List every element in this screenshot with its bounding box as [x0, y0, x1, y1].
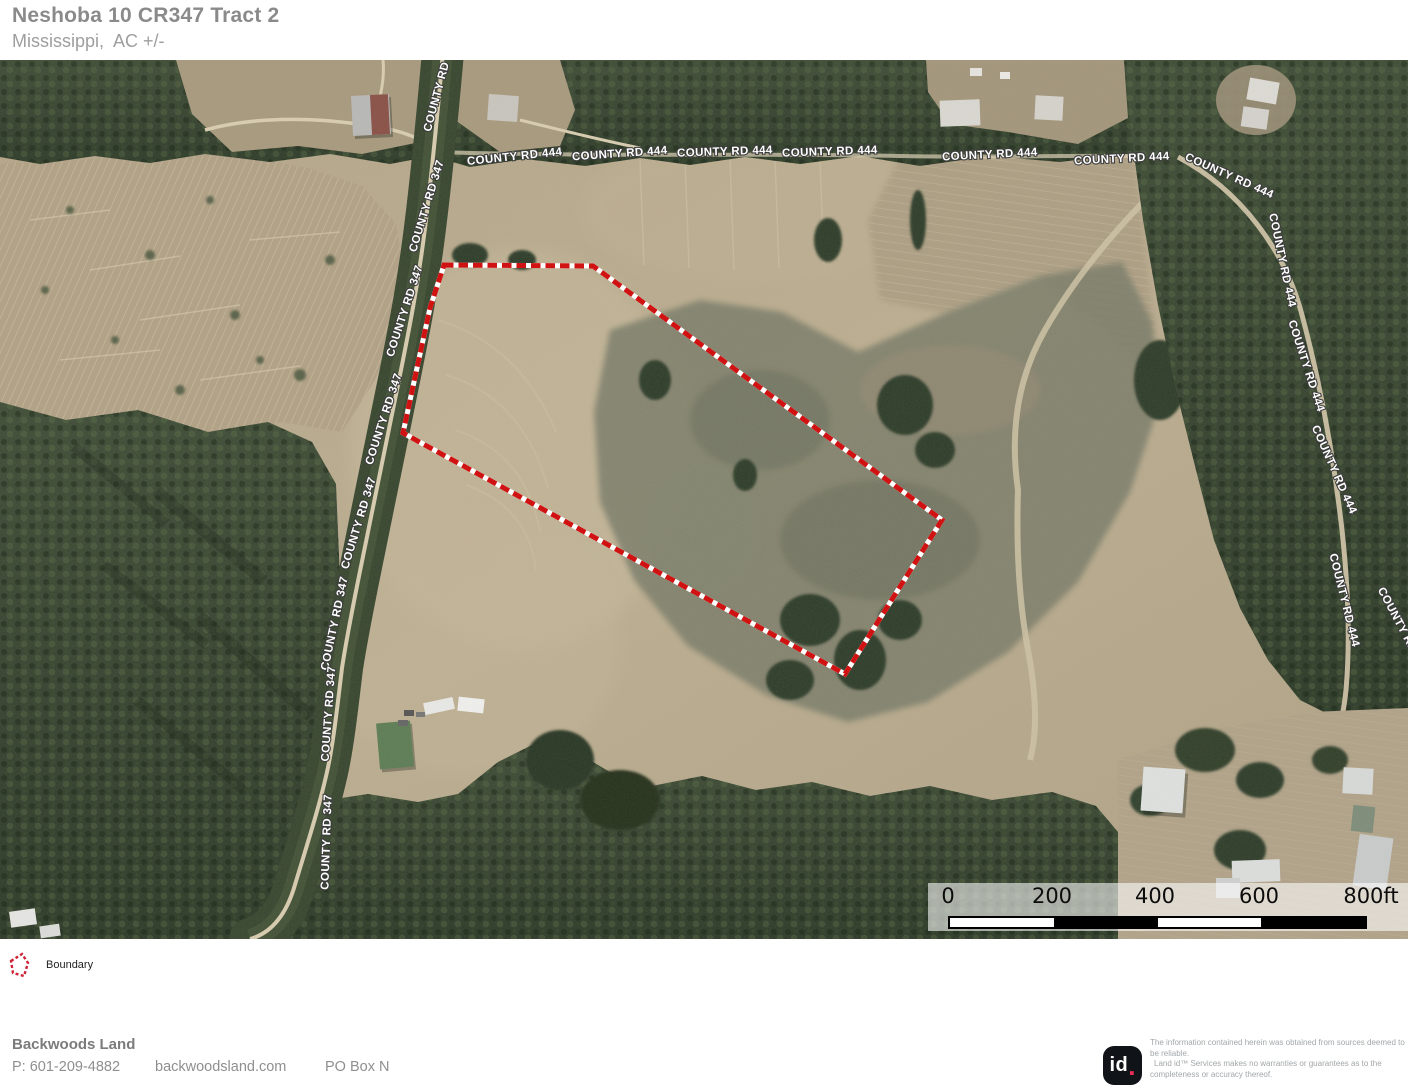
photo-grain: [0, 60, 1408, 939]
disclaimer: The information contained herein was obt…: [1150, 1038, 1406, 1080]
scale-tick: 0: [941, 884, 954, 908]
scale-tick: 800ft: [1343, 884, 1398, 908]
page-title: Neshoba 10 CR347 Tract 2: [12, 4, 279, 28]
footer: Backwoods Land P: 601-209-4882 backwoods…: [12, 1036, 512, 1077]
boundary-legend-icon: [8, 951, 32, 979]
aerial-map: COUNTY RD 444 COUNTY RD 444 COUNTY RD 44…: [0, 60, 1408, 939]
phone-number: P: 601-209-4882: [12, 1059, 120, 1075]
po-box: PO Box N: [325, 1059, 389, 1075]
disclaimer-line: The information contained herein was obt…: [1150, 1038, 1406, 1059]
logo-text: id: [1109, 1054, 1128, 1077]
aerial-basemap: COUNTY RD 444 COUNTY RD 444 COUNTY RD 44…: [0, 60, 1408, 939]
scale-tick: 400: [1135, 884, 1175, 908]
website: backwoodsland.com: [155, 1059, 286, 1075]
map-export-page: Neshoba 10 CR347 Tract 2 Mississippi, AC…: [0, 0, 1408, 1088]
map-scale-bar: 0 200 400 600 800ft: [928, 883, 1408, 931]
scale-tick: 600: [1239, 884, 1279, 908]
company-name: Backwoods Land: [12, 1036, 512, 1053]
scale-bar-segments: [948, 916, 1367, 929]
header: Neshoba 10 CR347 Tract 2 Mississippi, AC…: [12, 4, 279, 52]
disclaimer-line: Land id™ Services makes no warranties or…: [1150, 1059, 1406, 1080]
legend: Boundary: [8, 951, 93, 979]
land-id-logo: id .: [1103, 1046, 1142, 1085]
logo-dot: .: [1128, 1061, 1135, 1071]
legend-label-boundary: Boundary: [46, 959, 93, 971]
page-subtitle: Mississippi, AC +/-: [12, 31, 279, 52]
scale-tick: 200: [1032, 884, 1072, 908]
